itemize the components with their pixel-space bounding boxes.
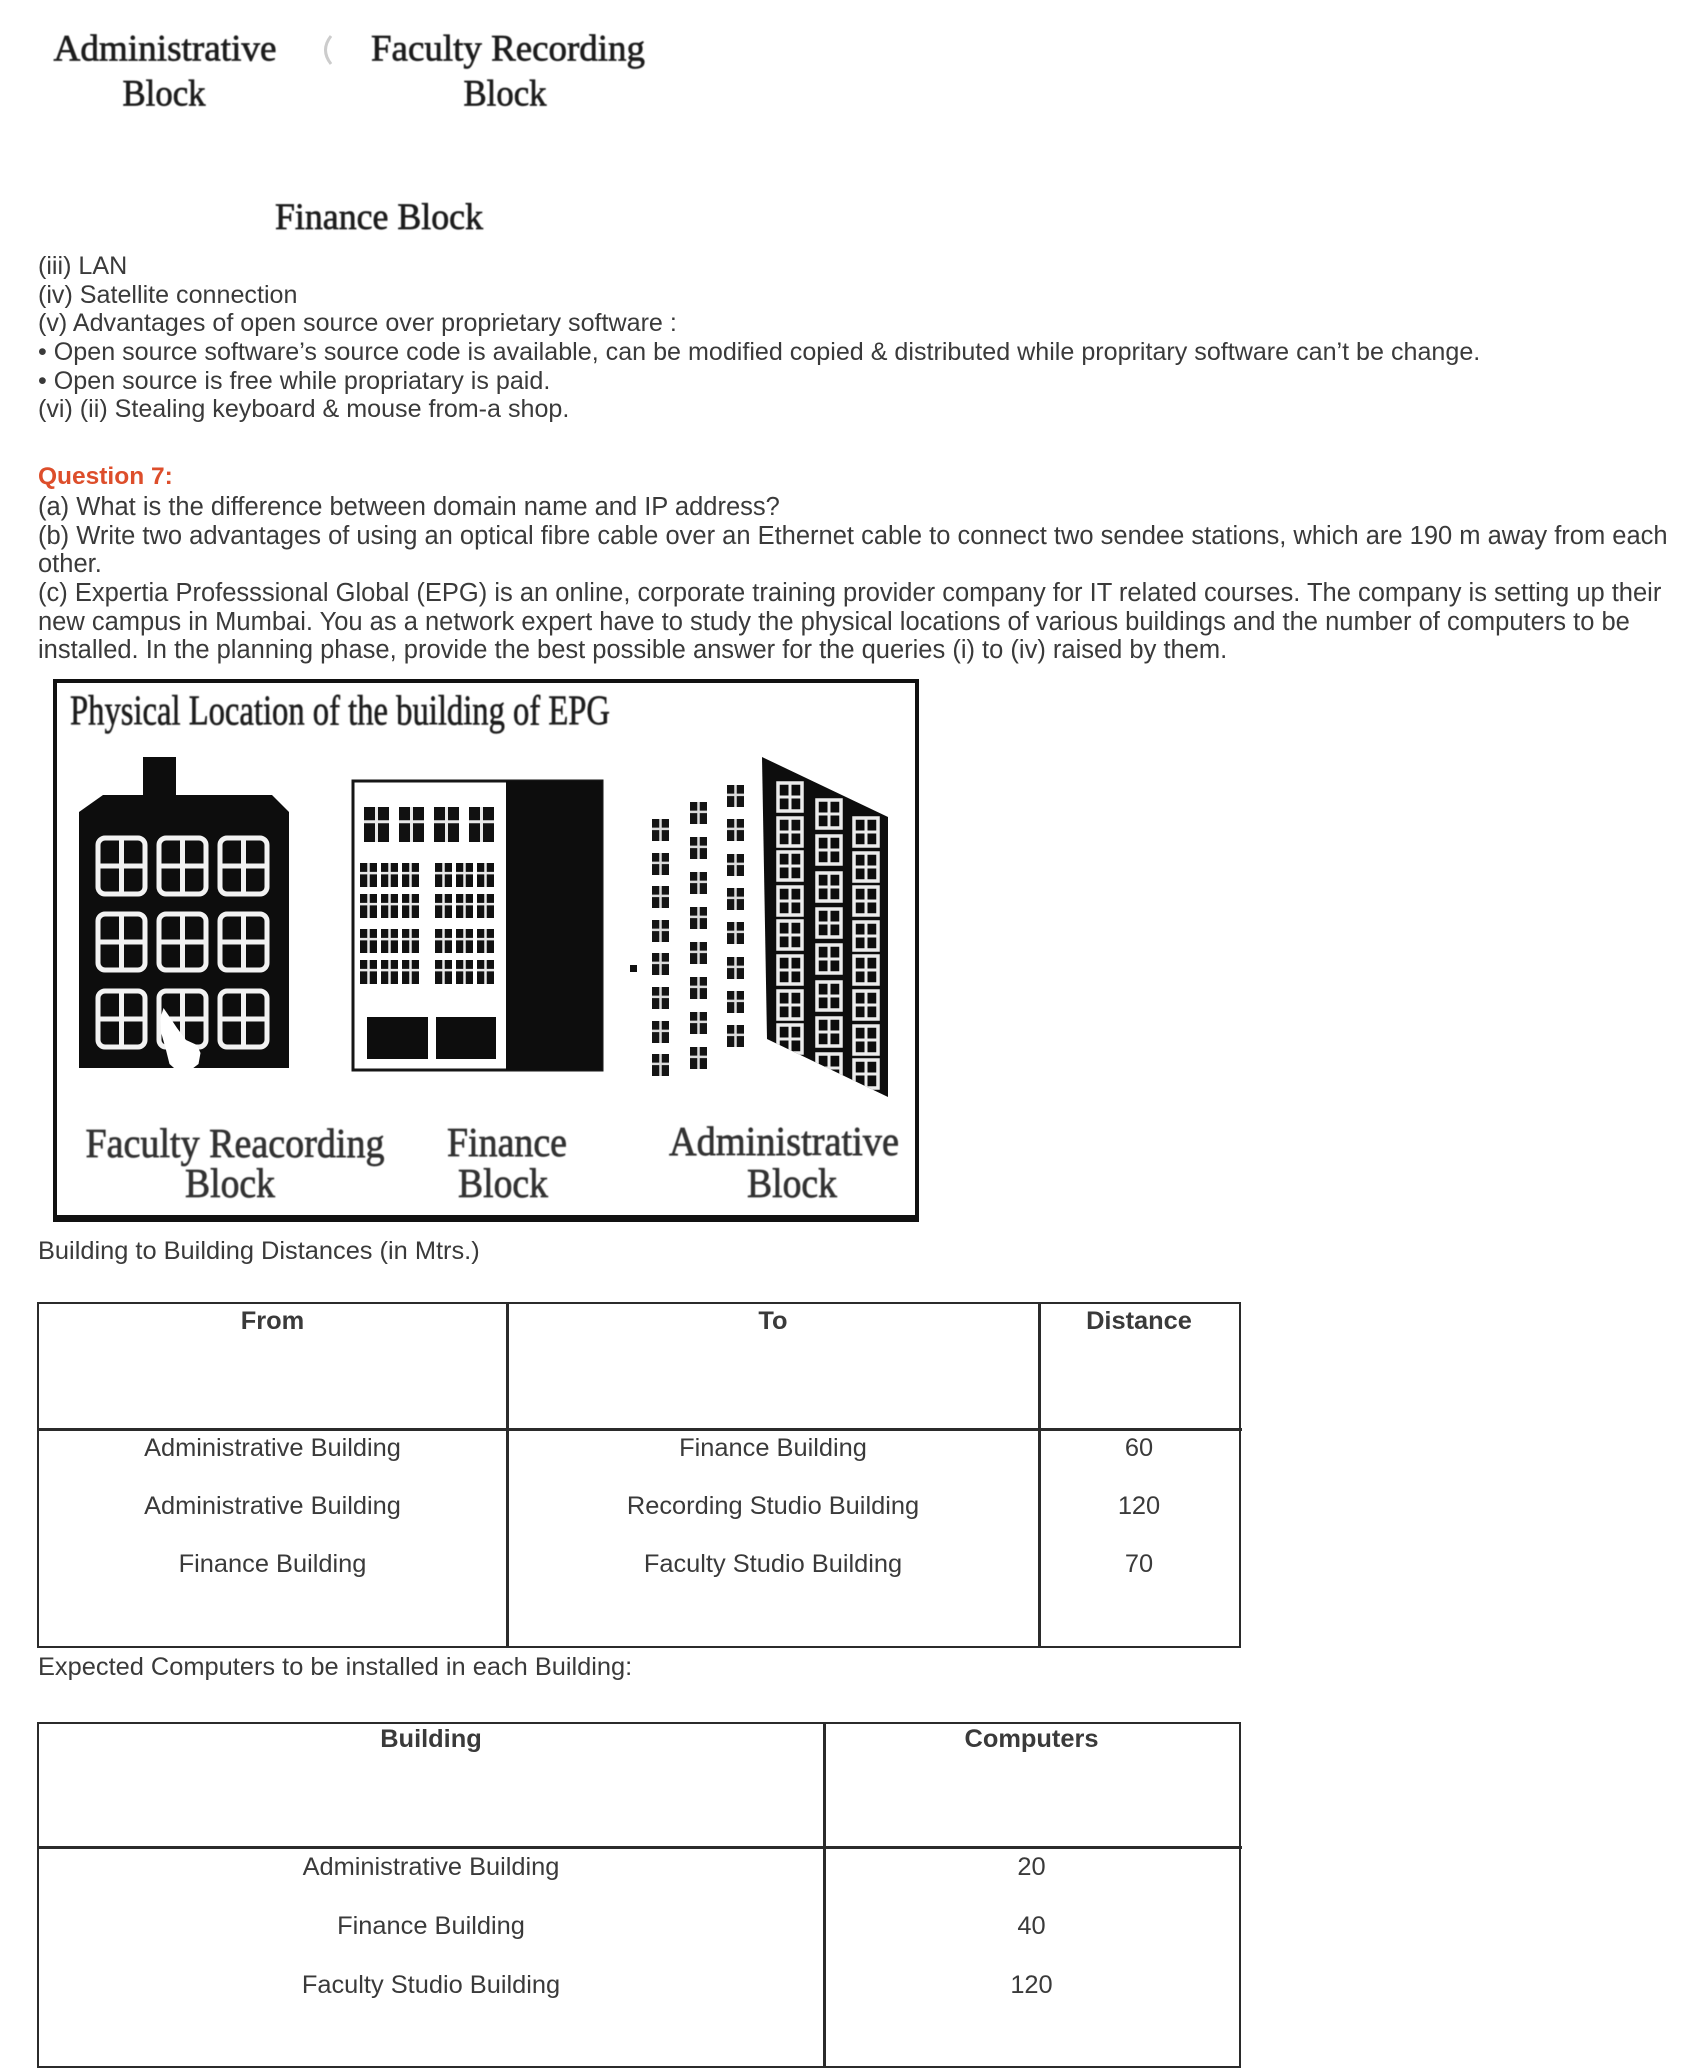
svg-text:Block: Block	[747, 1160, 837, 1206]
svg-text:Block: Block	[123, 74, 206, 115]
svg-text:Finance: Finance	[447, 1119, 567, 1165]
svg-text:Finance Block: Finance Block	[275, 197, 483, 238]
svg-text:Block: Block	[464, 74, 547, 115]
svg-text:Block: Block	[185, 1160, 275, 1206]
svg-text:Block: Block	[458, 1160, 548, 1206]
svg-text:Physical Location of the build: Physical Location of the building of EPG	[70, 689, 610, 735]
svg-text:Administrative: Administrative	[54, 29, 277, 70]
svg-text:Faculty Recording: Faculty Recording	[371, 29, 645, 70]
svg-text:Administrative: Administrative	[669, 1118, 899, 1164]
